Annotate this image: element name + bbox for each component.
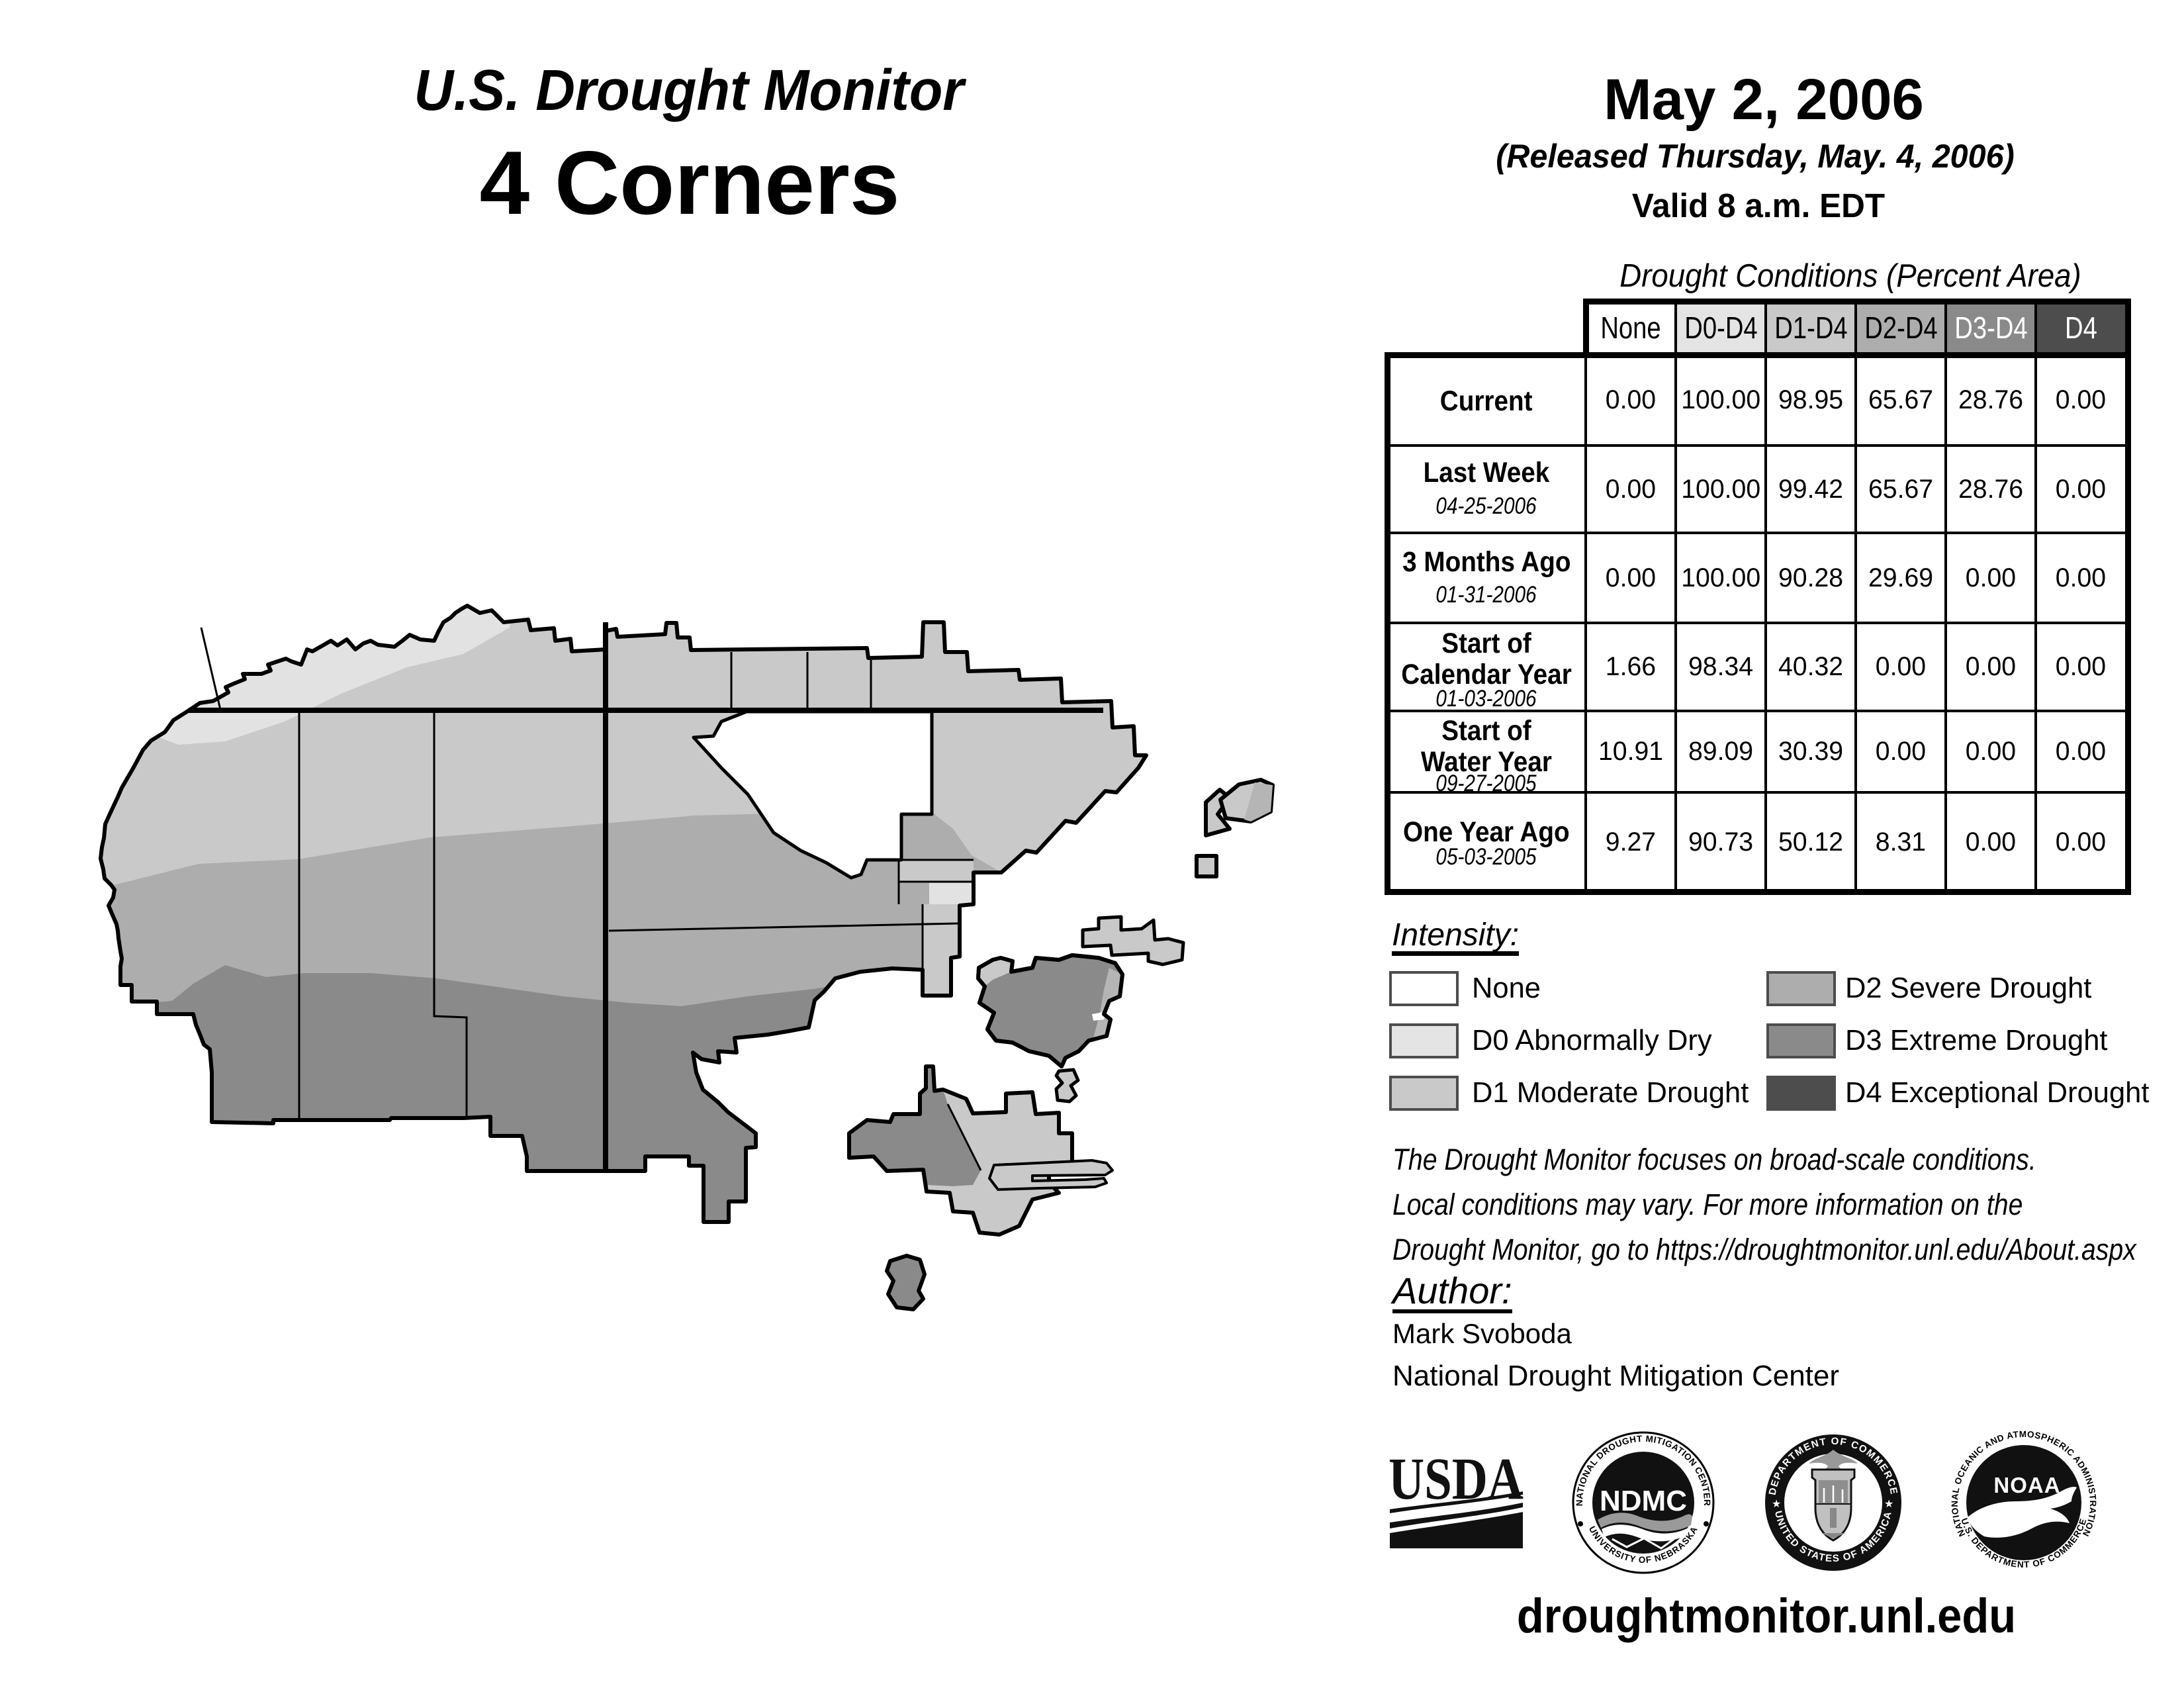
- svg-text:★: ★: [1772, 1499, 1781, 1510]
- svg-text:NOAA: NOAA: [1993, 1473, 2060, 1497]
- svg-text:★: ★: [1884, 1499, 1893, 1510]
- svg-text:NDMC: NDMC: [1600, 1485, 1687, 1517]
